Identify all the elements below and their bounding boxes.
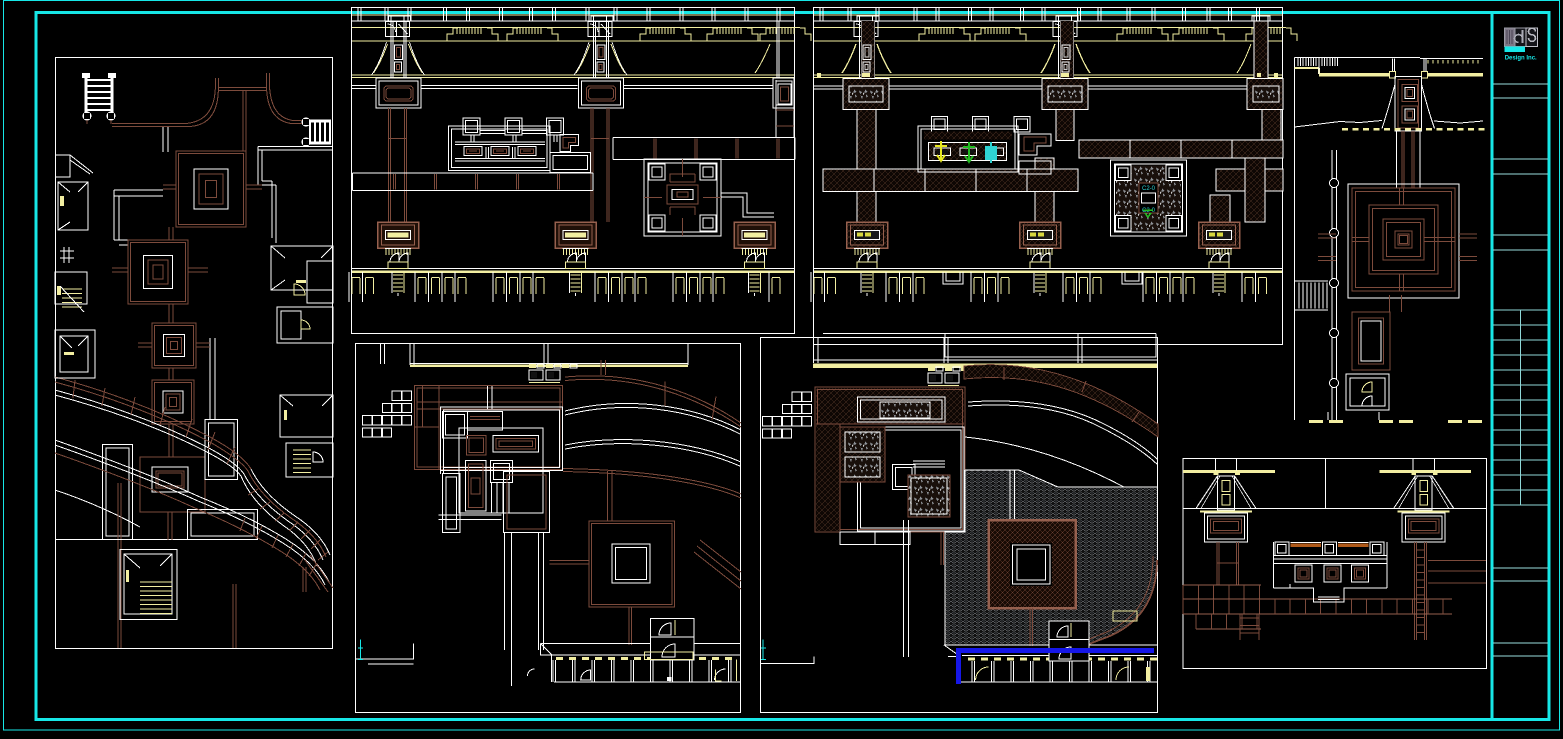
svg-text:C2-0: C2-0 [1142, 186, 1156, 192]
svg-text:C2-0: C2-0 [1142, 208, 1156, 214]
svg-text:Design Inc.: Design Inc. [1505, 56, 1537, 62]
